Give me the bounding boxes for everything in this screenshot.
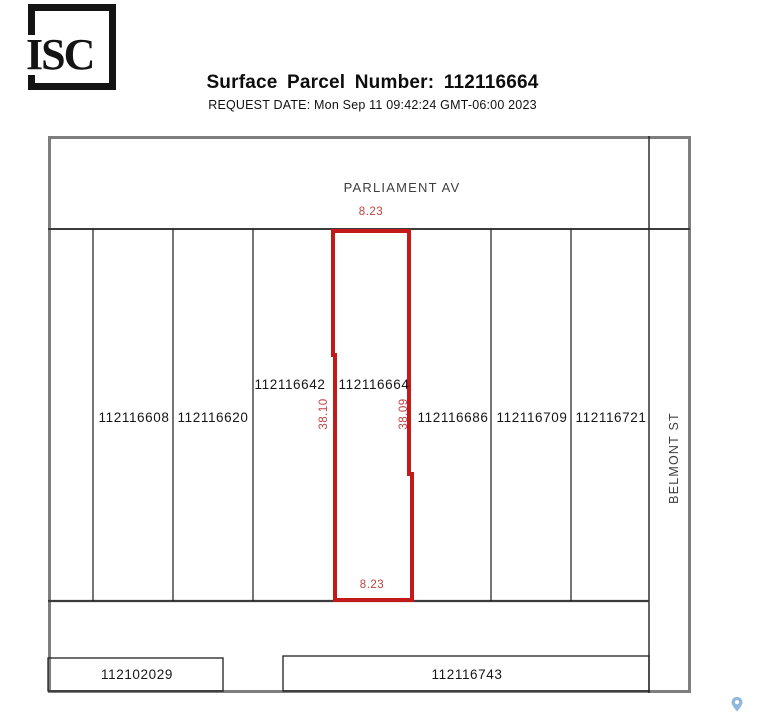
parcel-label-highlighted: 112116664: [334, 377, 414, 392]
isc-logo-text: ISC: [26, 35, 96, 75]
parcel-map: PARLIAMENT AV BELMONT ST 112116608 11211…: [46, 134, 694, 696]
parcel-label: 112116686: [413, 410, 493, 425]
parcel-label: 112102029: [97, 667, 177, 682]
dimension-label-right: 38.09: [398, 394, 410, 434]
parcel-label: 112116620: [173, 410, 253, 425]
dimension-label-top: 8.23: [331, 206, 411, 218]
parcel-label: 112116721: [571, 410, 651, 425]
location-pin-icon: [730, 696, 744, 713]
dimension-label-bottom: 8.23: [332, 579, 412, 591]
parcel-report-page: ISC Surface Parcel Number: 112116664 REQ…: [0, 0, 760, 720]
parcel-label: 112116709: [492, 410, 572, 425]
request-date: REQUEST DATE: Mon Sep 11 09:42:24 GMT-06…: [0, 98, 745, 112]
page-title: Surface Parcel Number: 112116664: [0, 72, 745, 94]
parcel-label: 112116608: [94, 410, 174, 425]
title-block: Surface Parcel Number: 112116664 REQUEST…: [0, 72, 745, 112]
street-label-belmont-st: BELMONT ST: [667, 403, 681, 513]
street-label-parliament-av: PARLIAMENT AV: [302, 180, 502, 195]
dimension-label-left: 38.10: [318, 394, 330, 434]
parcel-label: 112116743: [427, 667, 507, 682]
parcel-label: 112116642: [250, 377, 330, 392]
